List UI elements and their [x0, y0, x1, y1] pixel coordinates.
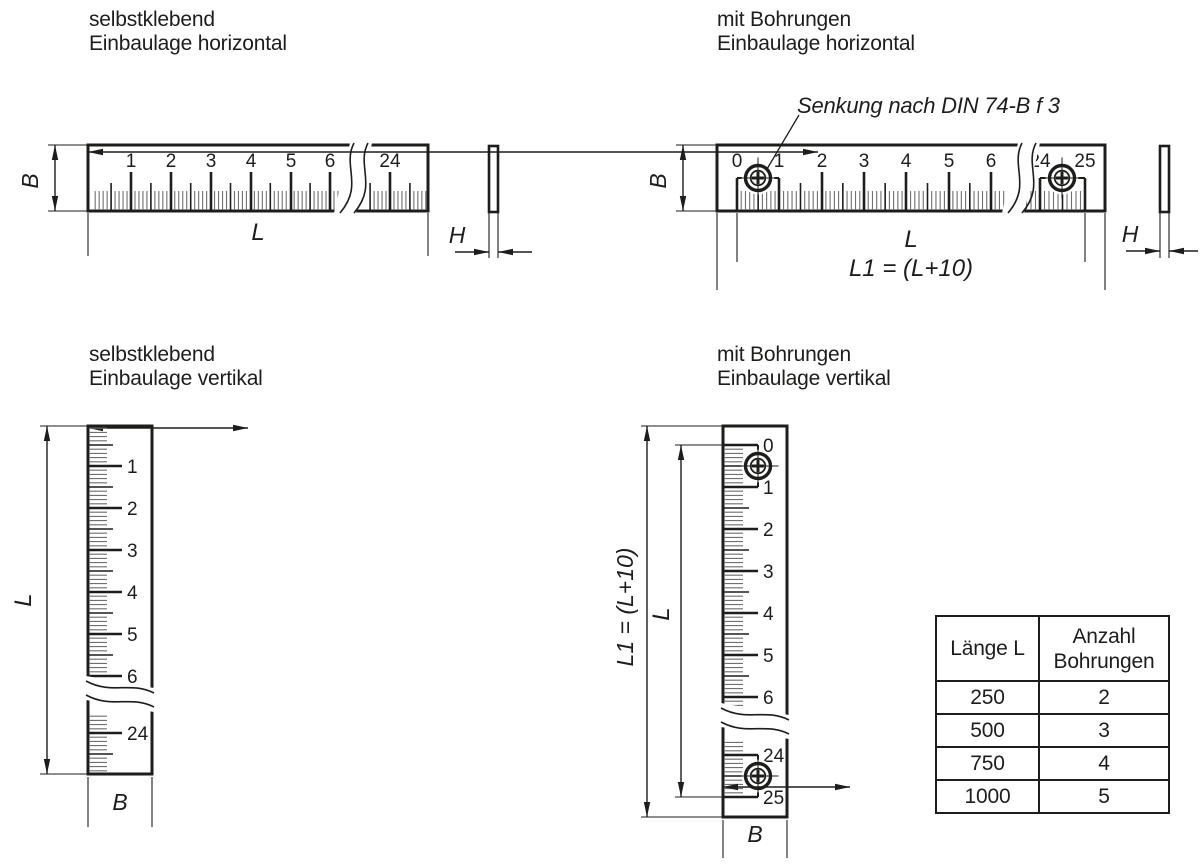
- countersink-note: Senkung nach DIN 74-B f 3: [797, 93, 1060, 119]
- scale-number: 6: [763, 688, 774, 709]
- dim-label-B: B: [112, 789, 127, 815]
- dim-label-L: L: [251, 219, 264, 246]
- scale-number: 25: [1074, 151, 1095, 172]
- section-title-line2: Einbaulage vertikal: [89, 367, 263, 391]
- section-title-line1: selbstklebend: [89, 8, 287, 32]
- table-row: 500 3: [936, 714, 1169, 747]
- section-title-line1: mit Bohrungen: [717, 343, 891, 367]
- dim-label-L1: L1 = (L+10): [849, 255, 973, 282]
- scale-number: 3: [127, 541, 138, 562]
- ruler-drilled-horizontal-side-view: H: [1122, 146, 1198, 258]
- scale-number: 6: [325, 151, 336, 172]
- scale-number: 3: [763, 562, 774, 583]
- dim-label-L: L: [10, 593, 37, 606]
- scale-number: 3: [859, 151, 870, 172]
- table-row: 750 4: [936, 747, 1169, 780]
- section-title-drilled-horizontal: mit Bohrungen Einbaulage horizontal: [717, 8, 915, 56]
- cell-laenge: 750: [936, 747, 1039, 780]
- dim-label-H: H: [1122, 221, 1139, 247]
- scale-number: 24: [379, 151, 401, 172]
- scale-number: 5: [286, 151, 297, 172]
- section-title-drilled-vertical: mit Bohrungen Einbaulage vertikal: [717, 343, 891, 391]
- ruler-adhesive-horizontal-side-view: H: [449, 146, 532, 258]
- dim-label-H: H: [449, 222, 466, 248]
- section-title-line2: Einbaulage vertikal: [717, 367, 891, 391]
- cell-laenge: 1000: [936, 780, 1039, 813]
- countersunk-hole-icon: [738, 158, 779, 199]
- dim-label-B: B: [747, 821, 762, 847]
- scale-number: 2: [763, 520, 774, 541]
- section-title-line2: Einbaulage horizontal: [717, 32, 915, 56]
- dim-label-B: B: [645, 173, 671, 188]
- scale-number: 0: [732, 151, 743, 172]
- scale-number: 4: [763, 604, 774, 625]
- table-row: 250 2: [936, 681, 1169, 714]
- header-line: Länge: [950, 637, 1007, 660]
- cell-anzahl: 5: [1039, 780, 1169, 813]
- cell-laenge: 500: [936, 714, 1039, 747]
- section-title-line1: mit Bohrungen: [717, 8, 915, 32]
- table-row: 1000 5: [936, 780, 1169, 813]
- cell-anzahl: 4: [1039, 747, 1169, 780]
- cell-anzahl: 3: [1039, 714, 1169, 747]
- col-header-anzahl: Anzahl Bohrungen: [1039, 616, 1169, 681]
- cell-laenge: 250: [936, 681, 1039, 714]
- section-title-line1: selbstklebend: [89, 343, 263, 367]
- scale-number: 4: [901, 151, 912, 172]
- scale-number: 1: [126, 151, 137, 172]
- section-title-adhesive-horizontal: selbstklebend Einbaulage horizontal: [89, 8, 287, 56]
- dim-label-L1: L1 = (L+10): [612, 548, 638, 667]
- scale-number: 24: [127, 724, 149, 745]
- scale-number: 3: [206, 151, 217, 172]
- scale-number: 1: [763, 478, 774, 499]
- header-line: Bohrungen: [1054, 650, 1155, 673]
- scale-number: 2: [166, 151, 177, 172]
- scale-number: 2: [127, 499, 138, 520]
- dim-label-B: B: [17, 173, 43, 188]
- col-header-laenge: Länge L: [936, 616, 1039, 681]
- scale-number: 5: [944, 151, 955, 172]
- header-line: L: [1013, 637, 1024, 660]
- ruler-drilled-vertical: 01234562425L1 = (L+10)LB: [612, 426, 850, 858]
- scale-number: 5: [127, 625, 138, 646]
- section-title-adhesive-vertical: selbstklebend Einbaulage vertikal: [89, 343, 263, 391]
- scale-number: 6: [986, 151, 997, 172]
- scale-number: 25: [763, 788, 784, 809]
- scale-number: 5: [763, 646, 774, 667]
- scale-number: 4: [246, 151, 257, 172]
- dim-label-L: L: [648, 607, 675, 620]
- header-line: Anzahl: [1072, 625, 1135, 648]
- ruler-adhesive-vertical: 12345624LB: [10, 149, 818, 827]
- section-title-line2: Einbaulage horizontal: [89, 32, 287, 56]
- table-header-row: Länge L Anzahl Bohrungen: [936, 616, 1169, 681]
- scale-number: 4: [127, 583, 138, 604]
- length-holes-table: Länge L Anzahl Bohrungen 250 2 500 3 750…: [935, 615, 1170, 814]
- scale-number: 1: [127, 457, 138, 478]
- scale-number: 2: [817, 151, 828, 172]
- dim-label-L: L: [904, 226, 917, 253]
- cell-anzahl: 2: [1039, 681, 1169, 714]
